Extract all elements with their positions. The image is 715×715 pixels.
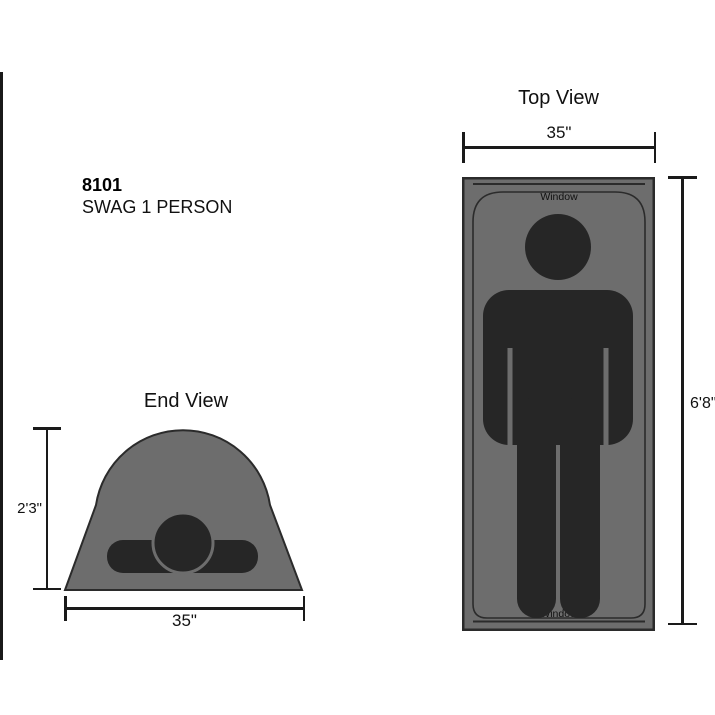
top-view-drawing: Window Window (462, 177, 655, 631)
top-view-title: Top View (462, 87, 655, 110)
dimension-line (681, 177, 684, 624)
dimension-tick (33, 588, 61, 591)
end-view-drawing (55, 420, 315, 600)
person-head-end-icon (153, 513, 213, 573)
dimension-tick (668, 623, 697, 626)
dimension-line (463, 146, 655, 149)
dimension-line (65, 607, 304, 610)
product-code: 8101 (82, 174, 232, 196)
person-head-icon (525, 214, 591, 280)
end-view-height-label: 2'3" (0, 500, 42, 517)
top-view-height-label: 6'8" (690, 395, 715, 413)
product-title: 8101 SWAG 1 PERSON (82, 174, 232, 218)
left-edge-bar (0, 72, 3, 660)
end-view-width-label: 35" (64, 611, 305, 631)
product-name: SWAG 1 PERSON (82, 196, 232, 218)
dimension-line (46, 428, 49, 589)
end-view-title: End View (61, 390, 311, 413)
diagram-canvas: 8101 SWAG 1 PERSON Top View 35" 6'8" Win… (0, 0, 715, 715)
person-right-leg (560, 397, 600, 618)
top-view-width-label: 35" (462, 123, 656, 143)
window-top-label: Window (540, 191, 578, 203)
person-left-leg (517, 397, 556, 618)
